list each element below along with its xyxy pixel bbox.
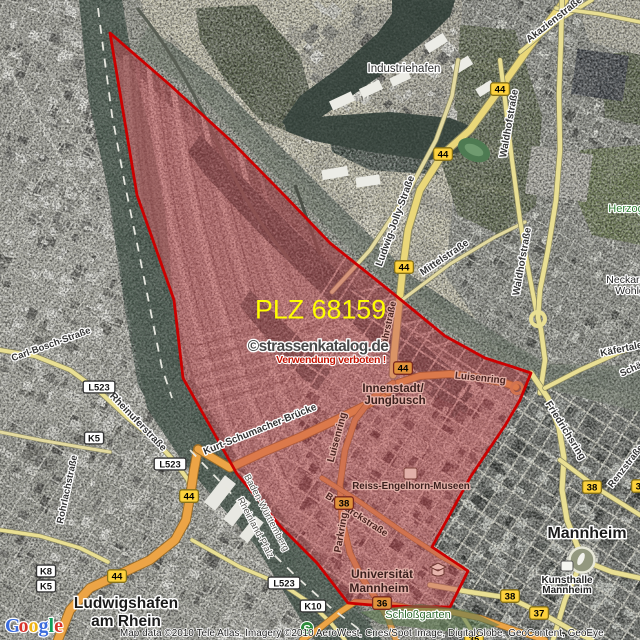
- svg-text:K5: K5: [40, 580, 52, 591]
- svg-text:38: 38: [339, 498, 350, 509]
- svg-text:Wohlg: Wohlg: [615, 285, 640, 297]
- svg-text:38: 38: [587, 482, 598, 493]
- svg-text:Map data ©2010 Tele Atlas, Ima: Map data ©2010 Tele Atlas, Imagery ©2010…: [120, 628, 604, 639]
- svg-text:44: 44: [399, 262, 410, 273]
- svg-text:Industriehafen: Industriehafen: [368, 63, 441, 75]
- svg-text:K10: K10: [304, 600, 321, 611]
- svg-text:o: o: [19, 615, 29, 637]
- svg-text:PLZ 68159: PLZ 68159: [255, 294, 386, 324]
- svg-text:L523: L523: [88, 381, 109, 392]
- svg-text:Herzog: Herzog: [608, 203, 640, 215]
- svg-text:Mannheim: Mannheim: [547, 525, 626, 542]
- svg-text:38: 38: [505, 591, 516, 602]
- svg-text:Schloßgarten: Schloßgarten: [385, 609, 450, 621]
- svg-text:K5: K5: [88, 432, 100, 443]
- svg-text:Jungbusch: Jungbusch: [364, 395, 425, 407]
- svg-text:Innenstadt/: Innenstadt/: [362, 383, 424, 395]
- svg-text:Mannheim: Mannheim: [349, 581, 408, 595]
- svg-text:Mannheim: Mannheim: [542, 585, 592, 596]
- svg-text:L523: L523: [159, 458, 180, 469]
- svg-text:44: 44: [438, 149, 449, 160]
- svg-text:44: 44: [112, 571, 123, 582]
- svg-text:37: 37: [534, 608, 545, 619]
- svg-text:Verwendung verboten !: Verwendung verboten !: [276, 354, 386, 366]
- svg-text:44: 44: [495, 84, 506, 95]
- svg-text:44: 44: [398, 363, 409, 374]
- svg-text:L523: L523: [273, 577, 294, 588]
- svg-text:36: 36: [377, 598, 388, 609]
- svg-text:K8: K8: [40, 565, 52, 576]
- svg-text:Universität: Universität: [351, 567, 413, 581]
- svg-text:e: e: [54, 615, 63, 637]
- svg-text:37: 37: [636, 481, 640, 492]
- svg-text:©strassenkatalog.de: ©strassenkatalog.de: [248, 338, 389, 355]
- svg-text:g: g: [39, 615, 49, 637]
- svg-text:o: o: [29, 615, 39, 637]
- svg-text:Ludwigshafen: Ludwigshafen: [74, 595, 178, 612]
- svg-text:Reiss-Engelhorn-Museen: Reiss-Engelhorn-Museen: [352, 481, 470, 492]
- svg-text:44: 44: [184, 491, 195, 502]
